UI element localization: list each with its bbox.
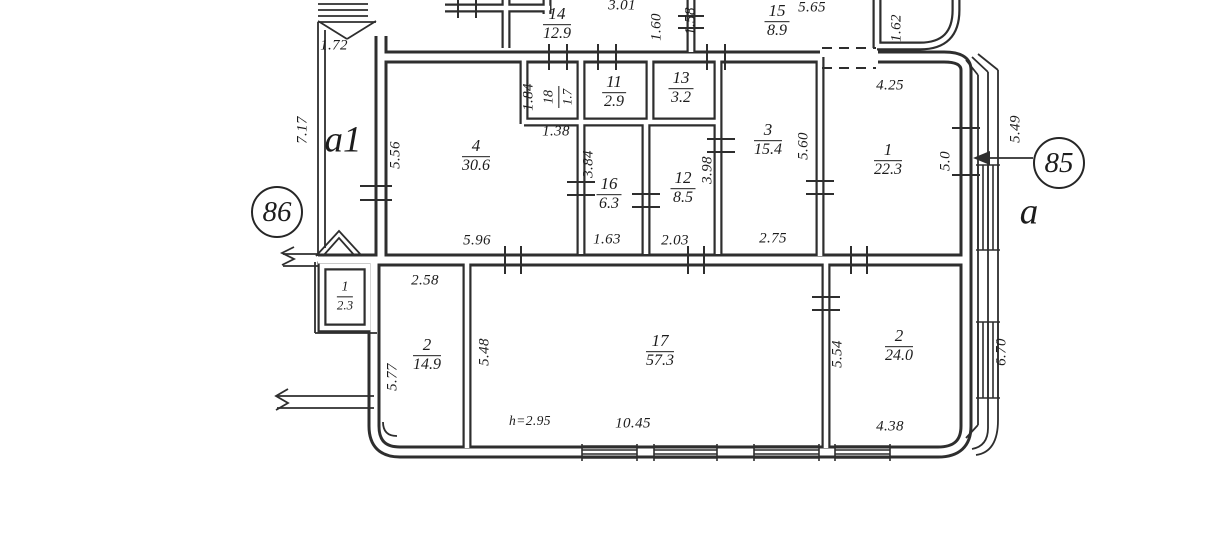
dim-label: 10.45 <box>615 416 651 433</box>
dim-label: 4.38 <box>876 419 904 436</box>
dim-label: 4.25 <box>876 78 904 95</box>
room-label-17: 17 57.3 <box>646 332 674 370</box>
dim-label: 5.60 <box>796 132 813 160</box>
axis-letter-a1: a1 <box>325 119 362 162</box>
section-marker-85: 85 <box>1033 137 1085 189</box>
dim-label: 5.56 <box>388 141 405 169</box>
dim-label: 6.70 <box>994 338 1011 366</box>
dim-label: 5.96 <box>463 233 491 250</box>
ceiling-height-note: h=2.95 <box>509 413 551 429</box>
room-label-16: 16 6.3 <box>597 175 622 213</box>
dim-label: 2.03 <box>661 233 689 250</box>
dim-label: 2.58 <box>411 273 439 290</box>
dim-label: 5.65 <box>798 0 826 17</box>
room-label-2b: 2 24.0 <box>885 327 913 365</box>
room-label-15: 15 8.9 <box>765 2 790 40</box>
room-label-18: 18 1.7 <box>542 86 573 108</box>
dim-label: 7.17 <box>295 116 312 144</box>
room-label-14: 14 12.9 <box>543 5 571 43</box>
dim-label: 1.58 <box>683 7 700 35</box>
marker-85-arrow <box>973 151 1033 165</box>
dim-label: 5.49 <box>1008 115 1025 143</box>
dim-label: 5.0 <box>938 151 955 171</box>
room-label-1: 1 22.3 <box>874 141 902 179</box>
dim-label: 1.38 <box>542 124 570 141</box>
room-label-3: 3 15.4 <box>754 121 782 159</box>
dim-label: 3.84 <box>581 150 598 178</box>
section-marker-86: 86 <box>251 186 303 238</box>
room-label-2a: 2 14.9 <box>413 336 441 374</box>
dim-label: 1.84 <box>521 83 538 111</box>
dim-label: 5.48 <box>477 338 494 366</box>
dim-label: 1.72 <box>320 38 348 55</box>
dim-label: 2.75 <box>759 231 787 248</box>
dim-label: 1.62 <box>889 14 906 42</box>
dim-label: 1.63 <box>593 232 621 249</box>
room-label-4: 4 30.6 <box>462 137 490 175</box>
dim-label: 5.54 <box>830 340 847 368</box>
room-label-13: 13 3.2 <box>669 69 694 107</box>
floor-plan-page: 1.72 7.17 3.01 1.60 1.58 5.65 1.62 4.25 … <box>0 0 1206 558</box>
dim-label: 3.01 <box>608 0 636 15</box>
dim-label: 5.77 <box>385 363 402 391</box>
room-label-11: 11 2.9 <box>602 73 626 111</box>
dim-label: 3.98 <box>700 156 717 184</box>
dashed-wall <box>822 48 876 68</box>
axis-letter-a: a <box>1020 191 1039 234</box>
room-label-1-small: 1 2.3 <box>337 280 353 311</box>
room-label-12: 12 8.5 <box>671 169 696 207</box>
dim-label: 1.60 <box>649 13 666 41</box>
